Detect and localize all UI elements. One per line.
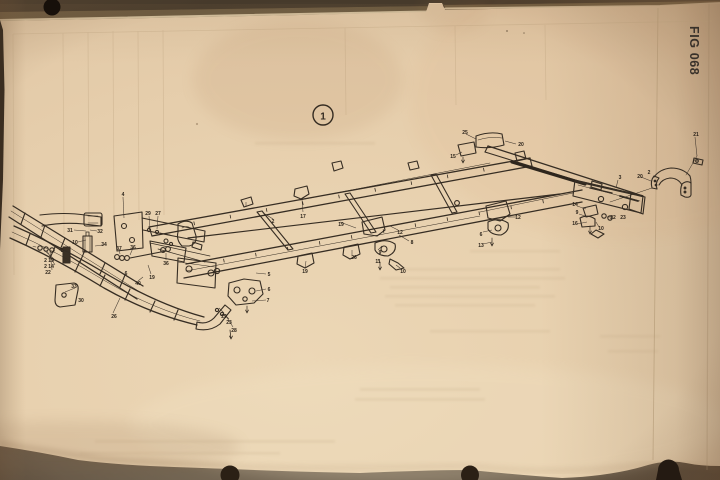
svg-text:32: 32	[97, 229, 103, 235]
svg-text:6: 6	[480, 232, 483, 238]
svg-text:20: 20	[637, 174, 643, 180]
svg-text:34: 34	[101, 242, 107, 248]
svg-text:1: 1	[320, 112, 326, 123]
svg-text:29: 29	[145, 211, 151, 217]
svg-text:19: 19	[302, 269, 308, 275]
svg-text:14: 14	[572, 202, 578, 208]
svg-text:30: 30	[78, 298, 84, 304]
svg-text:5: 5	[268, 272, 271, 278]
svg-text:22: 22	[45, 270, 51, 276]
svg-text:23: 23	[620, 215, 626, 221]
svg-text:27: 27	[155, 211, 161, 217]
svg-text:22: 22	[610, 215, 616, 221]
svg-text:5: 5	[61, 248, 64, 254]
svg-text:12: 12	[397, 230, 403, 236]
svg-text:9: 9	[379, 250, 382, 256]
svg-text:23: 23	[226, 320, 232, 326]
svg-text:11: 11	[375, 259, 381, 265]
svg-text:3: 3	[619, 175, 622, 181]
svg-text:40: 40	[135, 281, 141, 287]
svg-text:10: 10	[400, 269, 406, 275]
svg-text:10: 10	[72, 240, 78, 246]
svg-text:9: 9	[576, 210, 579, 216]
svg-text:2: 2	[648, 170, 651, 176]
svg-text:20: 20	[518, 142, 524, 148]
svg-text:12: 12	[515, 215, 521, 221]
svg-text:19: 19	[338, 222, 344, 228]
svg-text:4: 4	[122, 192, 125, 198]
svg-text:FIG 068: FIG 068	[687, 26, 701, 75]
svg-text:26: 26	[111, 314, 117, 320]
svg-text:6: 6	[268, 287, 271, 293]
svg-text:21: 21	[693, 132, 699, 138]
svg-text:7: 7	[267, 298, 270, 304]
svg-text:6: 6	[125, 271, 128, 277]
svg-text:17: 17	[300, 214, 306, 220]
svg-text:33: 33	[71, 284, 77, 290]
svg-text:26: 26	[351, 255, 357, 261]
svg-text:19: 19	[149, 275, 155, 281]
svg-text:36: 36	[130, 245, 136, 251]
svg-text:37: 37	[116, 246, 122, 252]
svg-text:28: 28	[231, 328, 237, 334]
svg-text:16: 16	[572, 221, 578, 227]
svg-text:2: 2	[272, 219, 275, 225]
svg-text:13: 13	[478, 243, 484, 249]
svg-text:15: 15	[450, 154, 456, 160]
svg-text:36: 36	[163, 261, 169, 267]
svg-text:31: 31	[67, 228, 73, 234]
svg-text:10: 10	[598, 226, 604, 232]
svg-text:25: 25	[462, 130, 468, 136]
svg-text:8: 8	[411, 240, 414, 246]
